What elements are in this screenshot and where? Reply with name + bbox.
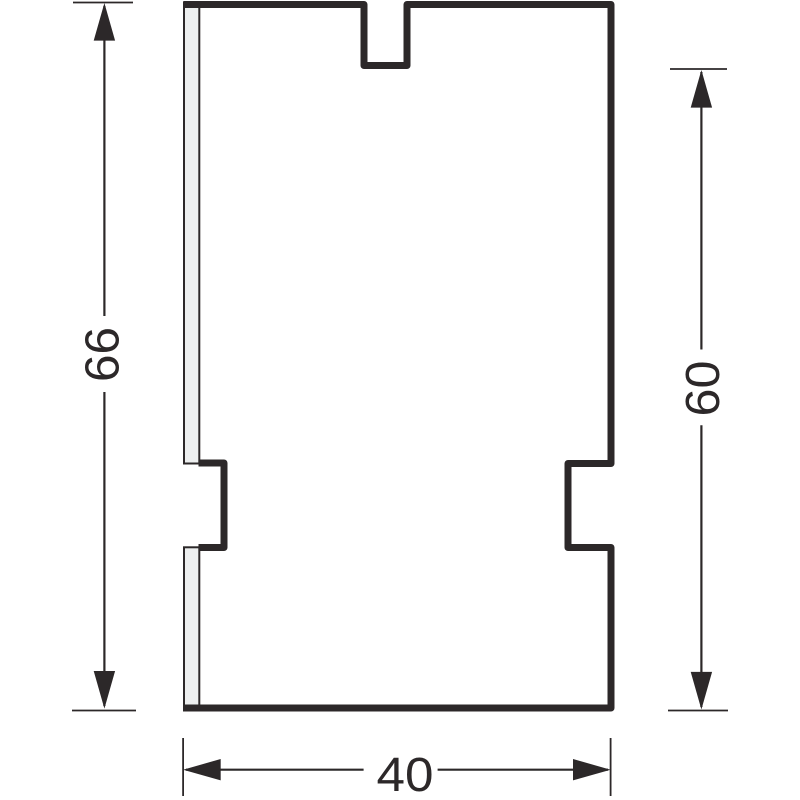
svg-text:66: 66 [77, 327, 130, 382]
svg-text:40: 40 [377, 749, 434, 800]
svg-text:60: 60 [677, 361, 730, 417]
